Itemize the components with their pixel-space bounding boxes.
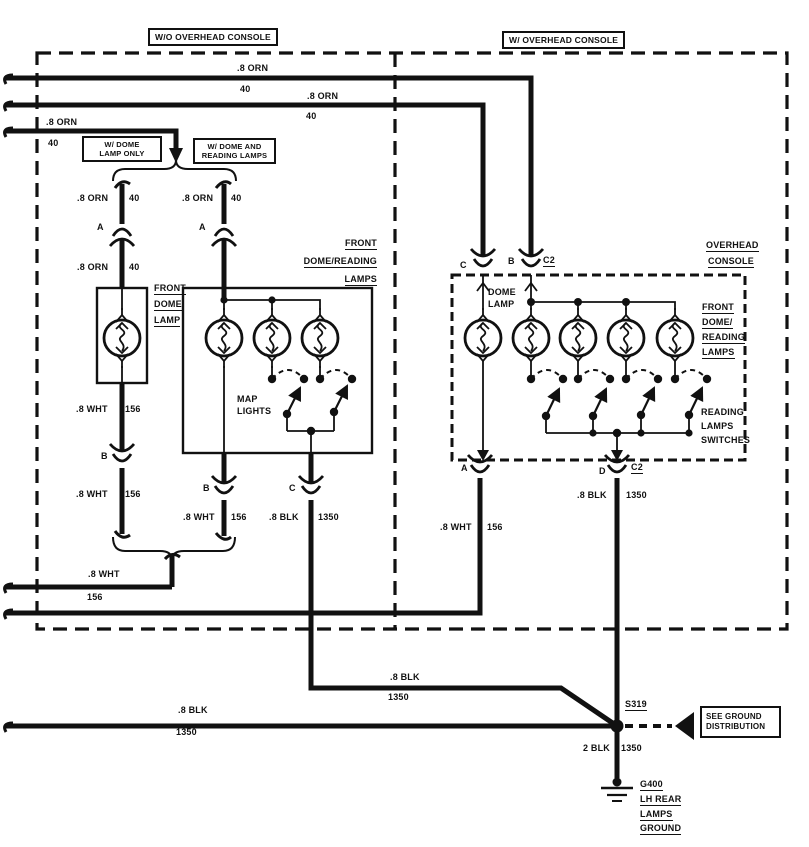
wire-label-whtO-circuit: 156 [487, 522, 503, 532]
wiring-diagram: W/O OVERHEAD CONSOLE W/ OVERHEAD CONSOLE… [0, 0, 809, 847]
overhead-reading-lamp-2 [560, 308, 596, 368]
option-dome-reading-line1: W/ DOME AND [198, 142, 271, 151]
wire-label-whtU-gauge: .8 WHT [76, 404, 108, 414]
wire-label-orn1-gauge: .8 ORN [237, 63, 268, 73]
ground-label-lamps: LAMPS [640, 809, 673, 821]
wire-label-blkBr-gauge: .8 BLK [390, 672, 420, 682]
wire-label-orn1-circuit: 40 [240, 84, 250, 94]
region-title-wo-overhead-console: W/O OVERHEAD CONSOLE [148, 28, 278, 46]
map-lights-label-1: MAP [237, 394, 258, 404]
front-dome-lamp-label-1: FRONT [154, 283, 186, 295]
see-ground-distribution-box: SEE GROUND DISTRIBUTION [700, 706, 781, 738]
pin-label-b-top: B [508, 256, 515, 266]
option-dome-only-line1: W/ DOME [87, 140, 157, 149]
wire-label-whtH-gauge: .8 WHT [88, 569, 120, 579]
front-dome-lamp-label-2: DOME [154, 299, 182, 311]
wire-label-branchL2-gauge: .8 ORN [77, 262, 108, 272]
wire-label-whtO-gauge: .8 WHT [440, 522, 472, 532]
wire-label-branchL-circuit: 40 [129, 193, 139, 203]
front-dome-reading-left-label-2: DOME/READING [300, 256, 377, 266]
off-page-triangle-icon [675, 712, 694, 740]
wire-label-blkBr-circuit: 1350 [388, 692, 409, 702]
dome-lamp-label-1: DOME [488, 287, 516, 297]
overhead-reading-lamp-4 [657, 308, 693, 368]
wire-label-whtL-circuit: 156 [125, 489, 141, 499]
pin-label-c2-top: C2 [543, 255, 555, 267]
pin-label-a-left: A [97, 222, 104, 232]
front-dome-reading-box [183, 288, 372, 453]
wire-label-branchR-gauge: .8 ORN [182, 193, 213, 203]
pin-label-d-overhead: D [599, 466, 606, 476]
wire-label-blkMain-gauge: .8 BLK [178, 705, 208, 715]
dome-lamp-label-2: LAMP [488, 299, 514, 309]
wire-label-blkM-gauge: .8 BLK [269, 512, 299, 522]
option-dome-only-line2: LAMP ONLY [87, 149, 157, 158]
overhead-reading-lamp-1 [513, 308, 549, 368]
wire-label-blkO-gauge: .8 BLK [577, 490, 607, 500]
wire-label-whtL-gauge: .8 WHT [76, 489, 108, 499]
front-dome-reading-right-label-1: FRONT [702, 302, 734, 314]
overhead-dome-lamp [465, 308, 501, 368]
wire-label-2blk-circuit: 1350 [621, 743, 642, 753]
overhead-dots [527, 298, 711, 437]
wire-label-orn2-gauge: .8 ORN [307, 91, 338, 101]
reading-switches-label-3: SWITCHES [701, 435, 750, 445]
front-dome-reading-right-label-3: READING [702, 332, 745, 344]
wiring-svg [0, 0, 809, 847]
wire-label-orn3-gauge: .8 ORN [46, 117, 77, 127]
splice-s319-dot [611, 720, 624, 733]
pin-label-b-left: B [101, 451, 108, 461]
overhead-reading-lamp-3 [608, 308, 644, 368]
front-dome-reading-left-label-1: FRONT [300, 238, 377, 248]
pin-label-c-top: C [460, 260, 467, 270]
reading-switches-label-2: LAMPS [701, 421, 734, 431]
wire-label-2blk-gauge: 2 BLK [583, 743, 610, 753]
front-dome-reading-left-label-3: LAMPS [300, 274, 377, 284]
connector-a-overhead [468, 455, 492, 472]
reading-switches-label-1: READING [701, 407, 744, 417]
option-dome-reading-line2: READING LAMPS [198, 151, 271, 160]
map-lamp-2 [254, 308, 290, 368]
wire-label-blkM-circuit: 1350 [318, 512, 339, 522]
wire-label-blkO-circuit: 1350 [626, 490, 647, 500]
front-dome-lamp-label-3: LAMP [154, 315, 180, 327]
splice-s319-label: S319 [625, 699, 647, 711]
front-dome-lamp-symbol [104, 308, 140, 368]
wire-label-orn3-circuit: 40 [48, 138, 58, 148]
ground-label-lh-rear: LH REAR [640, 794, 681, 806]
overhead-console-label-2: CONSOLE [708, 256, 754, 268]
wire-label-blkMain-circuit: 1350 [176, 727, 197, 737]
see-ground-line2: DISTRIBUTION [706, 722, 775, 732]
split-brace [113, 160, 236, 560]
pin-label-c-mid: C [289, 483, 296, 493]
wire-label-whtU-circuit: 156 [125, 404, 141, 414]
ground-label-ground: GROUND [640, 823, 681, 835]
map-lamp-3 [302, 308, 338, 368]
region-title-w-overhead-console: W/ OVERHEAD CONSOLE [502, 31, 625, 49]
pin-label-b-mid: B [203, 483, 210, 493]
pin-label-c2-bottom: C2 [631, 462, 643, 474]
pin-label-a-overhead: A [461, 463, 468, 473]
wire-orn-feed-2 [6, 105, 483, 256]
see-ground-line1: SEE GROUND [706, 712, 775, 722]
wire-label-branchL-gauge: .8 ORN [77, 193, 108, 203]
option-box-dome-and-reading: W/ DOME AND READING LAMPS [193, 138, 276, 164]
ground-label-g400: G400 [640, 779, 663, 791]
reading-lamps-internal-left [224, 300, 352, 453]
front-dome-reading-right-label-4: LAMPS [702, 347, 735, 359]
overhead-console-label-1: OVERHEAD [706, 240, 759, 252]
front-dome-reading-right-label-2: DOME/ [702, 317, 733, 329]
map-lamp-1 [206, 308, 242, 368]
wire-label-branchL2-circuit: 40 [129, 262, 139, 272]
option-box-dome-lamp-only: W/ DOME LAMP ONLY [82, 136, 162, 162]
wire-label-orn2-circuit: 40 [306, 111, 316, 121]
ground-symbol-icon [601, 778, 633, 802]
map-lights-label-2: LIGHTS [237, 406, 271, 416]
wire-label-whtH-circuit: 156 [87, 592, 103, 602]
wire-label-branchR-circuit: 40 [231, 193, 241, 203]
wire-label-whtM-circuit: 156 [231, 512, 247, 522]
pin-label-a-mid: A [199, 222, 206, 232]
wire-label-whtM-gauge: .8 WHT [183, 512, 215, 522]
